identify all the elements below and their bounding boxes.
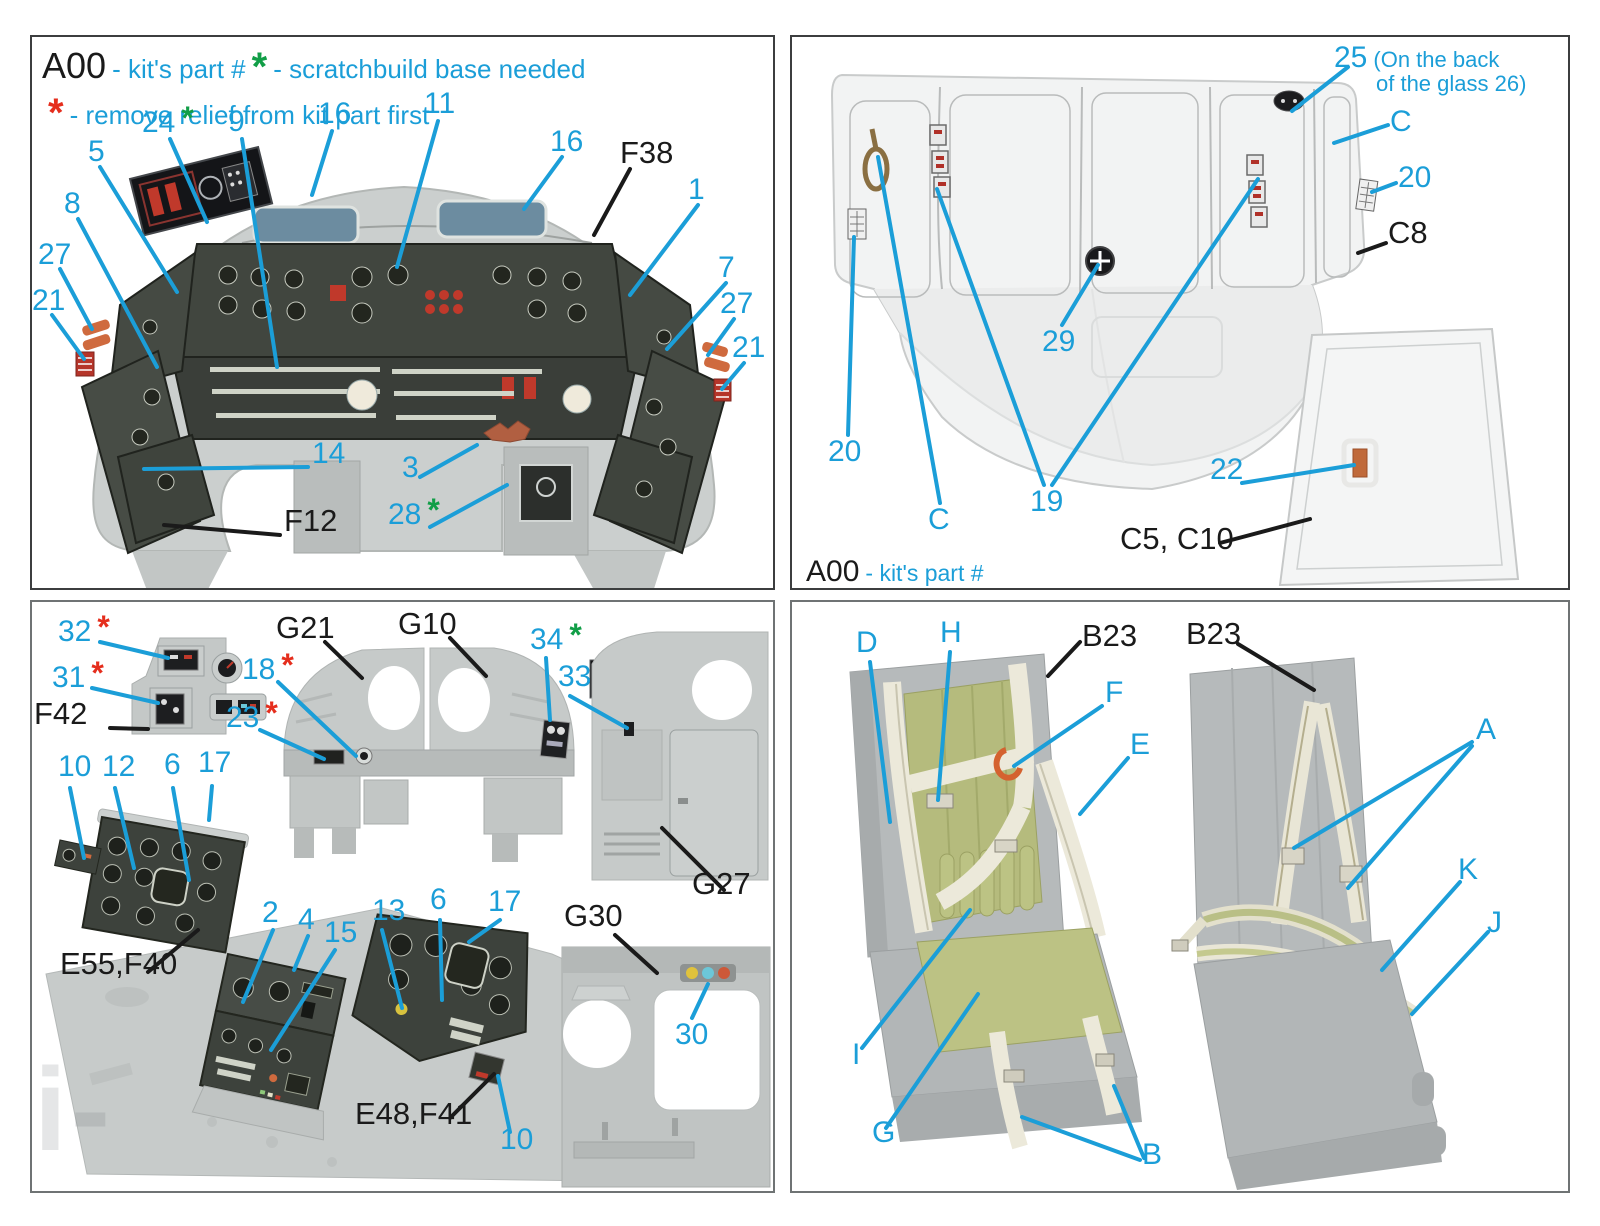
leader-j — [1412, 932, 1488, 1014]
part-label-g10: G10 — [398, 608, 457, 639]
part-label-e55-f40: E55,F40 — [60, 948, 177, 979]
part-g30 — [562, 947, 770, 1187]
part-label-c8: C8 — [1388, 217, 1428, 248]
instruction-sheet: A00 - kit's part # * - scratchbuild base… — [0, 0, 1600, 1226]
leader-16-right — [524, 157, 562, 209]
callout-6-left: 6 — [164, 750, 181, 780]
callout-h: H — [940, 618, 962, 648]
left-base-leg — [132, 551, 228, 588]
quadrant-consoles: i-modelist.ru 32* 31* F42 18* 23* G21 G1… — [30, 600, 775, 1193]
part-label-f42: F42 — [34, 698, 87, 729]
latch-20-right — [1356, 179, 1378, 211]
lever-27-left — [77, 318, 115, 351]
leader-f42 — [110, 728, 148, 729]
legend-scratch-text: - scratchbuild base needed — [273, 56, 585, 82]
display-16-left — [254, 207, 358, 243]
callout-4: 4 — [298, 905, 315, 935]
leader-f38 — [594, 169, 630, 235]
callout-a: A — [1476, 715, 1496, 745]
callout-d: D — [856, 628, 878, 658]
callout-10-right: 10 — [500, 1125, 533, 1155]
seat-side-tab-2 — [1424, 1126, 1446, 1156]
light-cyan — [702, 967, 714, 979]
light-yellow — [686, 967, 698, 979]
seats-photo — [792, 602, 1568, 1191]
callout-12: 12 — [102, 752, 135, 782]
bulkhead-foot-2 — [332, 828, 356, 854]
part-label-c5-c10: C5, C10 — [1120, 523, 1234, 554]
legend-kit-part-tr: A00 - kit's part # — [806, 557, 984, 587]
white-dial-left — [347, 380, 377, 410]
callout-11: 11 — [424, 89, 455, 119]
callout-23: 23* — [226, 700, 278, 733]
leader-6b — [440, 920, 442, 1000]
callout-28: 28* — [388, 497, 440, 530]
callout-1: 1 — [688, 175, 705, 205]
strap-buckle-left — [1282, 848, 1304, 864]
canopy-photo — [792, 37, 1568, 588]
callout-17-right: 17 — [488, 887, 521, 917]
callout-27-left: 27 — [38, 240, 71, 270]
legend-kit-text: - kit's part # — [112, 56, 246, 82]
part-label-f38: F38 — [620, 137, 673, 168]
callout-6-right: 6 — [430, 885, 447, 915]
callout-25-note: of the glass 26) — [1376, 73, 1526, 95]
red-asterisk-icon: * — [48, 93, 64, 133]
callout-18: 18* — [242, 652, 294, 685]
shelf-box-1 — [290, 776, 360, 828]
part-e55-f40 — [79, 808, 250, 953]
shelf-box-3 — [484, 778, 562, 834]
callout-3: 3 — [402, 453, 419, 483]
callout-e: E — [1130, 730, 1150, 760]
green-asterisk-icon: * — [252, 47, 268, 87]
callout-27-right: 27 — [720, 289, 753, 319]
seat-left — [850, 654, 1142, 1147]
right-base-leg — [572, 551, 666, 588]
callout-14: 14 — [312, 439, 345, 469]
main-panel — [172, 244, 638, 357]
leader-b23-left — [1048, 642, 1080, 676]
callout-16-left: 16 — [318, 99, 351, 129]
part-g21 — [284, 648, 424, 750]
part-label-e48-f41: E48,F41 — [355, 1098, 472, 1129]
display-16-right — [438, 201, 546, 237]
part-label-g21: G21 — [276, 612, 335, 643]
quadrant-instrument-panel: A00 - kit's part # * - scratchbuild base… — [30, 35, 775, 590]
leader-k — [1382, 882, 1460, 970]
part-label-b23-right: B23 — [1186, 618, 1241, 649]
callout-c-top: C — [1390, 107, 1412, 137]
leader-a2 — [1348, 746, 1472, 888]
callout-i: I — [852, 1040, 860, 1070]
callout-c-left: C — [928, 505, 950, 535]
part-label-f12: F12 — [284, 505, 337, 536]
callout-7: 7 — [718, 253, 735, 283]
part-label-b23-left: B23 — [1082, 620, 1137, 651]
callout-21-left: 21 — [32, 286, 65, 316]
callout-34: 34* — [530, 622, 582, 655]
callout-10-left: 10 — [58, 752, 91, 782]
callout-17-left: 17 — [198, 748, 231, 778]
latch-20-left — [848, 209, 866, 239]
legend-relief-text: - remove relief from kit part first — [70, 102, 430, 128]
part-label-g30: G30 — [564, 900, 623, 931]
leader-14 — [144, 467, 308, 469]
callout-22: 22 — [1210, 455, 1243, 485]
callout-30: 30 — [675, 1020, 708, 1050]
part-10-wing-left — [55, 840, 101, 874]
grid-21-left — [76, 352, 94, 376]
leader-21-left — [52, 315, 84, 359]
legend-part-code: A00 — [42, 48, 106, 84]
callout-21-right: 21 — [732, 333, 765, 363]
legend-kit-part: A00 - kit's part # * - scratchbuild base… — [42, 45, 585, 85]
callout-5: 5 — [88, 137, 105, 167]
decal-32 — [164, 650, 198, 670]
part-label-g27: G27 — [692, 868, 751, 899]
seat-pan-right — [1194, 940, 1437, 1158]
callout-20-left: 20 — [828, 437, 861, 467]
seat-side-tab-1 — [1412, 1072, 1434, 1106]
handle-22 — [1353, 449, 1367, 477]
knob-29 — [1086, 247, 1114, 275]
pedestal-panel-28 — [520, 465, 572, 521]
callout-25: 25(On the back — [1334, 43, 1499, 73]
leader-1 — [630, 205, 698, 295]
callout-20-right: 20 — [1398, 163, 1431, 193]
decal-34 — [540, 720, 570, 759]
bulkhead-foot-3 — [492, 834, 518, 862]
part-25-oval — [1274, 91, 1304, 111]
part-g27 — [592, 632, 768, 880]
callout-29: 29 — [1042, 327, 1075, 357]
callout-f: F — [1105, 678, 1123, 708]
callout-8: 8 — [64, 189, 81, 219]
callout-24: 24* — [142, 105, 194, 138]
shelf-box-2 — [364, 780, 408, 824]
bulkhead-foot-1 — [294, 828, 314, 858]
callout-32: 32* — [58, 614, 110, 647]
callout-9: 9 — [228, 107, 245, 137]
white-dial-right — [563, 385, 591, 413]
seat-right — [1172, 658, 1446, 1190]
callout-13: 13 — [372, 896, 405, 926]
buckle-2 — [995, 840, 1017, 852]
callout-j: J — [1487, 908, 1502, 938]
leader-e — [1080, 758, 1128, 814]
callout-15: 15 — [324, 918, 357, 948]
callout-33: 33 — [558, 662, 591, 692]
callout-2: 2 — [262, 898, 279, 928]
callout-k: K — [1458, 855, 1478, 885]
decal-31 — [156, 694, 184, 724]
callout-g: G — [872, 1118, 895, 1148]
callout-16-right: 16 — [550, 127, 583, 157]
callout-19: 19 — [1030, 487, 1063, 517]
quadrant-canopy: 25(On the back of the glass 26) C 20 C8 … — [790, 35, 1570, 590]
callout-b: B — [1142, 1140, 1162, 1170]
side-glass-c5-c10 — [1280, 329, 1518, 585]
quadrant-seats: B23 D H F E I G B B23 A K J — [790, 600, 1570, 1193]
light-red — [718, 967, 730, 979]
leader-17a — [209, 786, 212, 820]
leader-16-left — [312, 131, 332, 195]
callout-31: 31* — [52, 660, 104, 693]
